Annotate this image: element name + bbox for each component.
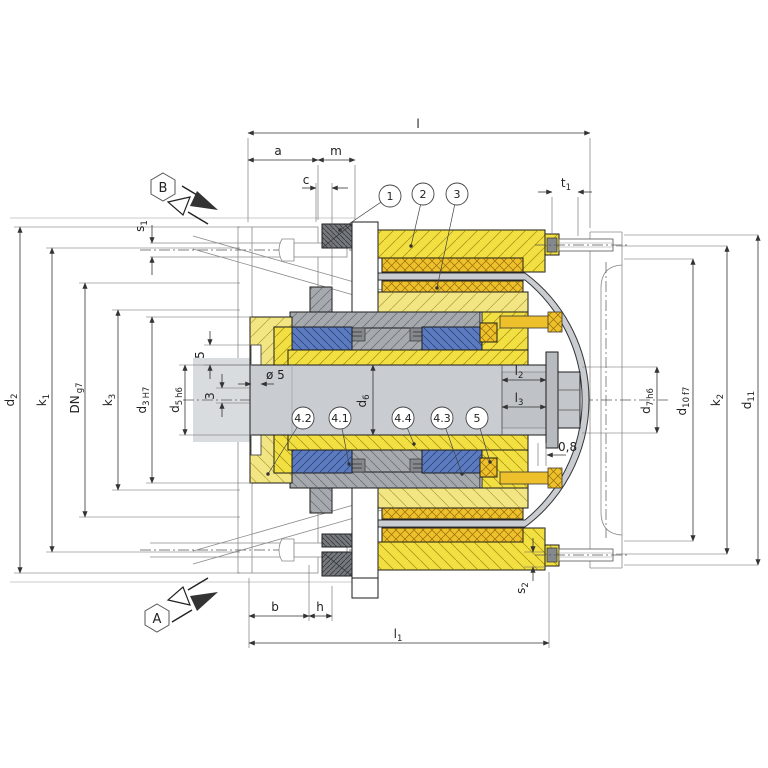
callout-2: 2 [412,183,434,205]
threaded-stud [559,239,613,251]
callout-4-4: 4.4 [392,407,414,429]
end-washer [546,352,558,448]
callout-3-label: 3 [454,188,461,201]
hex-bolt-head [558,372,580,428]
callout-41-label: 4.1 [331,412,349,425]
callout-4-2: 4.2 [292,407,314,429]
callout-5-label: 5 [474,412,481,425]
callout-4-3: 4.3 [431,407,453,429]
dim-l: l [416,117,419,131]
callout-4-1: 4.1 [329,407,351,429]
view-a-label: A [153,612,162,627]
clamp-block-bottom-hatch [322,534,352,547]
dim-m: m [330,144,342,158]
dim-a: a [274,144,281,158]
callout-5: 5 [466,407,488,429]
clutch-section-drawing: l a m c t1 d2 k1 DNg7 k3 [0,0,768,768]
dim-dia5: ø 5 [266,368,285,382]
callout-42-label: 4.2 [294,412,312,425]
armature-hub-collar [352,222,378,312]
callout-3: 3 [446,183,468,205]
radial-hole [251,345,261,365]
collar-extension-bottom [352,578,378,598]
dim-h: h [316,600,324,614]
callout-43-label: 4.3 [433,412,451,425]
callout-2-label: 2 [420,188,427,201]
dim-3: 3 [203,392,217,400]
technical-drawing-page: l a m c t1 d2 k1 DNg7 k3 [0,0,768,768]
dim-b: b [271,600,279,614]
callout-1-label: 1 [387,190,394,203]
view-b-label: B [159,181,168,196]
dim-c: c [303,173,310,187]
dim-5: 5 [193,351,207,359]
dim-gap08: 0,8 [558,440,577,454]
callout-44-label: 4.4 [394,412,412,425]
callout-1: 1 [379,185,401,207]
